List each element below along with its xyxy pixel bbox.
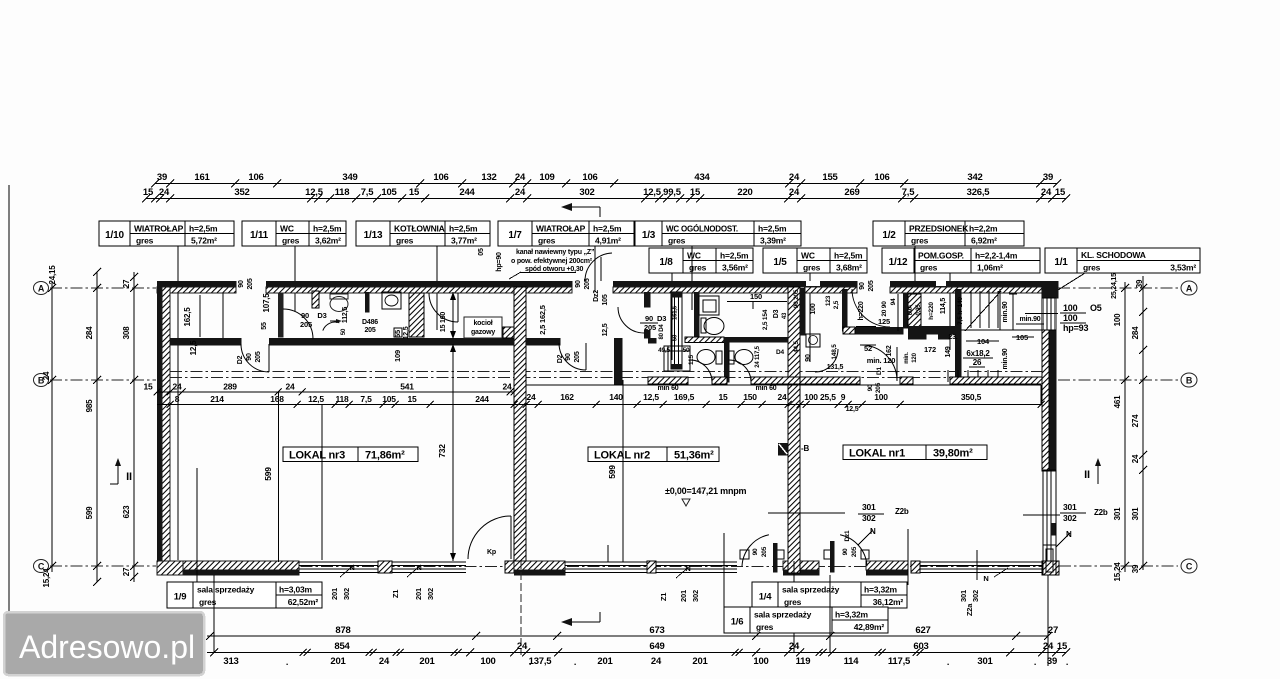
svg-text:Dz2: Dz2 (593, 290, 600, 302)
svg-text:49,5: 49,5 (658, 347, 670, 354)
svg-text:352: 352 (234, 187, 249, 198)
svg-text:24: 24 (526, 392, 536, 402)
svg-text:3,53m²: 3,53m² (1170, 263, 1196, 273)
svg-text:100: 100 (874, 392, 888, 402)
svg-text:1/9: 1/9 (174, 592, 187, 603)
svg-text:±0,00=147,21 mnpm: ±0,00=147,21 mnpm (665, 486, 747, 496)
svg-text:150: 150 (743, 392, 757, 402)
svg-text:148,5: 148,5 (831, 344, 838, 360)
svg-text:308: 308 (122, 326, 131, 339)
svg-text:WIATROŁAP: WIATROŁAP (536, 224, 586, 234)
svg-text:201: 201 (414, 588, 423, 600)
svg-text:26: 26 (973, 358, 982, 367)
svg-text:.: . (529, 657, 531, 667)
svg-text:min 60: min 60 (658, 385, 679, 392)
svg-text:h=2,5m: h=2,5m (834, 251, 863, 261)
svg-text:301: 301 (1131, 507, 1140, 520)
svg-text:269: 269 (844, 187, 859, 198)
svg-text:201: 201 (330, 656, 346, 667)
svg-text:15,24: 15,24 (42, 568, 51, 588)
svg-text:201: 201 (419, 656, 435, 667)
svg-text:137,5: 137,5 (529, 656, 553, 667)
svg-text:90: 90 (645, 314, 653, 323)
svg-text:541: 541 (400, 382, 414, 392)
svg-text:12,5: 12,5 (643, 392, 659, 402)
svg-text:24: 24 (517, 641, 528, 652)
svg-text:140: 140 (609, 392, 623, 402)
svg-text:100: 100 (753, 656, 768, 667)
svg-text:39: 39 (1043, 172, 1053, 183)
svg-text:15: 15 (1055, 187, 1066, 198)
svg-text:3,62m²: 3,62m² (315, 236, 341, 246)
svg-text:12,5: 12,5 (305, 187, 324, 198)
svg-text:12,5: 12,5 (846, 406, 859, 413)
svg-text:161,5: 161,5 (673, 305, 679, 320)
svg-text:132: 132 (481, 172, 496, 183)
svg-text:4,91m²: 4,91m² (595, 236, 621, 246)
svg-text:h=2,5m: h=2,5m (313, 224, 342, 234)
svg-text:90: 90 (301, 311, 309, 320)
svg-text:KL. SCHODOWA: KL. SCHODOWA (1081, 250, 1146, 260)
svg-text:90 205: 90 205 (793, 289, 800, 308)
svg-text:h=220: h=220 (928, 302, 935, 320)
svg-text:205: 205 (644, 323, 656, 332)
svg-text:301: 301 (977, 656, 993, 667)
svg-text:12,5: 12,5 (403, 326, 410, 339)
svg-text:3,68m²: 3,68m² (836, 263, 862, 273)
svg-text:WC OGÓLNODOST.: WC OGÓLNODOST. (666, 225, 738, 234)
svg-text:205: 205 (851, 546, 858, 557)
svg-text:min.90: min.90 (1002, 348, 1009, 369)
svg-text:205: 205 (868, 280, 875, 291)
svg-text:12,5: 12,5 (308, 394, 324, 404)
svg-text:106: 106 (248, 172, 263, 183)
svg-text:172: 172 (924, 345, 936, 354)
svg-text:168: 168 (270, 394, 284, 404)
svg-text:350,5: 350,5 (961, 392, 982, 402)
svg-text:90: 90 (565, 353, 572, 361)
svg-text:342: 342 (967, 172, 982, 183)
svg-text:gres: gres (1083, 263, 1101, 273)
svg-text:43: 43 (782, 312, 788, 319)
svg-text:1/2: 1/2 (882, 230, 896, 241)
svg-text:h=2,5m: h=2,5m (189, 224, 218, 234)
svg-text:289: 289 (223, 382, 237, 392)
svg-text:162,5: 162,5 (183, 307, 192, 327)
svg-text:55: 55 (261, 322, 268, 330)
svg-text:100: 100 (1063, 313, 1078, 323)
svg-text:313: 313 (223, 656, 238, 667)
svg-text:1/11: 1/11 (250, 230, 269, 241)
svg-text:205: 205 (247, 278, 254, 289)
svg-text:854: 854 (334, 641, 350, 652)
svg-text:114: 114 (844, 656, 860, 667)
svg-text:D3: D3 (773, 309, 780, 318)
svg-text:LOKAL nr1: LOKAL nr1 (849, 448, 905, 460)
svg-text:N: N (870, 527, 876, 536)
svg-text:220: 220 (737, 187, 752, 198)
svg-text:90: 90 (238, 280, 245, 288)
svg-text:109: 109 (393, 350, 402, 362)
svg-text:h=2,2-1,4m: h=2,2-1,4m (975, 251, 1018, 261)
svg-text:162: 162 (560, 392, 574, 402)
svg-text:gres: gres (538, 236, 556, 246)
svg-text:205: 205 (574, 351, 581, 362)
svg-text:1/5: 1/5 (773, 257, 787, 268)
svg-text:106: 106 (582, 172, 597, 183)
svg-text:100: 100 (1063, 303, 1078, 313)
svg-text:B: B (1186, 376, 1193, 386)
svg-text:2,5: 2,5 (833, 300, 840, 309)
svg-text:1/1: 1/1 (1054, 257, 1068, 268)
svg-text:302: 302 (862, 513, 876, 523)
svg-text:O5: O5 (1090, 303, 1102, 313)
svg-text:302: 302 (691, 590, 700, 602)
svg-text:kanał nawiewny typu „Z”: kanał nawiewny typu „Z” (516, 249, 594, 256)
svg-text:C: C (1186, 562, 1193, 572)
svg-text:205: 205 (300, 320, 312, 329)
svg-text:123: 123 (825, 295, 832, 306)
svg-text:gres: gres (803, 263, 821, 273)
svg-text:39: 39 (157, 172, 167, 183)
svg-text:244: 244 (459, 187, 475, 198)
svg-text:302: 302 (971, 590, 980, 602)
svg-text:100: 100 (810, 303, 817, 314)
svg-text:A: A (1186, 284, 1193, 294)
svg-text:627: 627 (915, 625, 930, 636)
svg-text:1/7: 1/7 (508, 230, 522, 241)
svg-text:24: 24 (789, 641, 800, 652)
svg-text:599: 599 (607, 465, 617, 479)
svg-text:205: 205 (364, 327, 375, 334)
svg-text:24: 24 (515, 172, 526, 183)
svg-text:Dz1: Dz1 (844, 530, 851, 542)
svg-text:39: 39 (1131, 564, 1140, 573)
svg-text:WC: WC (687, 251, 701, 261)
svg-text:D4: D4 (776, 349, 784, 356)
svg-text:24: 24 (651, 656, 662, 667)
svg-text:gres: gres (911, 236, 929, 246)
svg-text:D486: D486 (362, 319, 378, 326)
svg-text:24: 24 (1131, 454, 1140, 463)
svg-text:9: 9 (841, 392, 846, 402)
svg-text:599: 599 (263, 467, 273, 481)
svg-text:12,5: 12,5 (189, 340, 198, 356)
svg-text:62,52m²: 62,52m² (288, 597, 319, 607)
svg-text:Z1: Z1 (659, 593, 668, 601)
svg-text:LOKAL nr2: LOKAL nr2 (594, 450, 650, 462)
svg-text:sala sprzedaży: sala sprzedaży (782, 585, 840, 595)
svg-text:94: 94 (890, 298, 897, 305)
svg-text:1/12: 1/12 (889, 257, 908, 268)
svg-text:24: 24 (172, 382, 182, 392)
svg-text:min 60: min 60 (756, 385, 777, 392)
svg-text:7,5 h=140: 7,5 h=140 (957, 297, 964, 325)
svg-text:105: 105 (1016, 333, 1028, 342)
svg-text:N: N (416, 563, 421, 572)
svg-text:24: 24 (502, 382, 512, 392)
svg-text:112,5: 112,5 (342, 307, 349, 323)
svg-text:1/6: 1/6 (731, 617, 744, 628)
svg-text:162: 162 (886, 345, 893, 356)
svg-text:24 117,5: 24 117,5 (755, 345, 761, 367)
svg-text:1/10: 1/10 (105, 230, 124, 241)
svg-text:gres: gres (668, 236, 686, 246)
svg-text:104: 104 (977, 337, 990, 346)
svg-text:D1: D1 (876, 366, 883, 374)
svg-text:1/8: 1/8 (659, 257, 673, 268)
svg-text:205: 205 (761, 546, 768, 557)
svg-text:WC: WC (801, 251, 815, 261)
svg-text:II: II (126, 471, 132, 483)
svg-text:201: 201 (330, 588, 339, 600)
svg-text:09A: 09A (908, 304, 914, 315)
svg-text:673: 673 (649, 625, 664, 636)
svg-text:461: 461 (1113, 395, 1122, 408)
svg-text:27: 27 (1048, 625, 1058, 636)
svg-text:LOKAL nr3: LOKAL nr3 (289, 450, 345, 462)
svg-text:302: 302 (342, 588, 351, 600)
svg-text:8: 8 (175, 394, 180, 404)
svg-text:7,5: 7,5 (360, 394, 372, 404)
svg-text:WC: WC (280, 224, 294, 234)
svg-text:326,5: 326,5 (967, 187, 991, 198)
svg-text:50: 50 (673, 334, 679, 341)
svg-text:15 160: 15 160 (440, 312, 447, 333)
svg-text:gres: gres (396, 236, 414, 246)
svg-text:h=3,03m: h=3,03m (279, 585, 312, 595)
svg-text:gres: gres (282, 236, 300, 246)
svg-text:D3: D3 (317, 311, 326, 320)
svg-text:Adresowo.pl: Adresowo.pl (19, 629, 195, 665)
svg-text:302: 302 (1063, 513, 1077, 523)
svg-text:201: 201 (597, 656, 613, 667)
svg-text:min.90: min.90 (1002, 301, 1009, 322)
svg-text:7,5: 7,5 (902, 187, 916, 198)
svg-text:1/3: 1/3 (642, 230, 656, 241)
svg-text:1,06m²: 1,06m² (977, 263, 1003, 273)
svg-text:90: 90 (575, 280, 582, 288)
svg-text:284: 284 (85, 326, 94, 339)
svg-text:gres: gres (920, 263, 938, 273)
svg-text:24: 24 (42, 371, 51, 380)
svg-text:3,77m²: 3,77m² (451, 236, 477, 246)
svg-text:15: 15 (143, 187, 154, 198)
svg-text:o pow. efektywnej 200cm²: o pow. efektywnej 200cm² (511, 258, 593, 265)
svg-text:5,72m²: 5,72m² (191, 236, 217, 246)
svg-text:90: 90 (805, 354, 812, 362)
svg-text:II: II (1084, 469, 1090, 481)
svg-text:15: 15 (718, 392, 728, 402)
svg-text:349: 349 (342, 172, 357, 183)
svg-text:24: 24 (379, 656, 390, 667)
svg-text:244: 244 (475, 394, 489, 404)
svg-text:2,5 154: 2,5 154 (762, 309, 769, 330)
svg-text:24: 24 (777, 392, 787, 402)
svg-text:99,5: 99,5 (663, 187, 682, 198)
svg-text:42,89m²: 42,89m² (854, 622, 885, 632)
svg-text:POM.GOSP.: POM.GOSP. (918, 251, 964, 261)
svg-text:24: 24 (1041, 187, 1052, 198)
svg-text:109: 109 (539, 172, 554, 183)
svg-text:15: 15 (407, 394, 417, 404)
svg-text:24: 24 (515, 187, 526, 198)
svg-text:gres: gres (756, 622, 774, 632)
svg-text:1/4: 1/4 (759, 592, 773, 603)
svg-text:15: 15 (409, 187, 420, 198)
svg-text:hp=93: hp=93 (1063, 323, 1088, 333)
svg-text:h=2,2m: h=2,2m (969, 224, 998, 234)
svg-text:117,5: 117,5 (888, 656, 911, 667)
svg-text:24: 24 (1043, 641, 1054, 652)
svg-text:.: . (574, 657, 576, 667)
svg-text:15: 15 (1057, 641, 1068, 652)
svg-text:44,5: 44,5 (793, 340, 800, 352)
svg-text:h=2,5m: h=2,5m (593, 224, 622, 234)
svg-text:985: 985 (85, 399, 94, 412)
svg-text:155: 155 (822, 172, 838, 183)
svg-text:12,5: 12,5 (643, 187, 662, 198)
svg-text:h=220: h=220 (858, 301, 865, 320)
svg-text:649: 649 (649, 641, 664, 652)
svg-text:878: 878 (335, 625, 350, 636)
svg-text:kocioł: kocioł (473, 320, 492, 327)
svg-text:24: 24 (789, 187, 800, 198)
svg-text:119: 119 (796, 656, 811, 667)
svg-text:24,15: 24,15 (48, 265, 57, 285)
svg-text:100: 100 (480, 656, 495, 667)
svg-text:15: 15 (143, 382, 153, 392)
svg-text:05: 05 (478, 248, 485, 256)
svg-text:N: N (983, 574, 988, 583)
svg-text:-B: -B (801, 444, 809, 453)
svg-text:15: 15 (690, 187, 701, 198)
svg-text:12,5: 12,5 (602, 323, 609, 336)
svg-text:gazowy: gazowy (471, 329, 495, 336)
svg-text:Z2b: Z2b (895, 507, 909, 516)
svg-text:106: 106 (433, 172, 448, 183)
svg-text:27: 27 (122, 567, 131, 576)
svg-text:201: 201 (692, 656, 708, 667)
svg-text:min.: min. (904, 352, 910, 364)
svg-text:50: 50 (683, 347, 690, 354)
svg-text:169,5: 169,5 (674, 392, 695, 402)
svg-text:.: . (286, 657, 288, 667)
svg-text:D3: D3 (657, 314, 666, 323)
svg-text:623: 623 (122, 505, 131, 518)
svg-text:301: 301 (862, 502, 876, 512)
svg-text:100: 100 (1113, 313, 1122, 326)
svg-text:27: 27 (122, 279, 131, 288)
svg-text:24: 24 (159, 187, 170, 198)
svg-text:20 90: 20 90 (881, 301, 888, 317)
svg-text:150: 150 (750, 292, 762, 301)
svg-text:Z2b: Z2b (1094, 508, 1108, 517)
svg-text:301: 301 (959, 590, 968, 602)
svg-text:80 D4: 80 D4 (659, 324, 665, 340)
svg-text:732: 732 (437, 444, 447, 458)
svg-text:.: . (1066, 657, 1068, 667)
svg-text:Z1: Z1 (391, 590, 400, 598)
svg-text:301: 301 (1063, 502, 1077, 512)
svg-text:15,24: 15,24 (1113, 562, 1122, 582)
svg-text:KOTŁOWNIA: KOTŁOWNIA (394, 224, 445, 234)
svg-text:gres: gres (784, 597, 802, 607)
svg-text:2,5 162,5: 2,5 162,5 (538, 305, 547, 335)
svg-text:D2: D2 (237, 355, 244, 364)
svg-text:N: N (685, 564, 690, 573)
svg-text:118: 118 (335, 187, 350, 198)
svg-text:0,95: 0,95 (916, 304, 922, 316)
svg-text:gres: gres (136, 236, 154, 246)
svg-text:114,5: 114,5 (940, 298, 947, 314)
svg-text:302: 302 (426, 588, 435, 600)
svg-text:201: 201 (679, 590, 688, 602)
svg-text:h=3,32m: h=3,32m (835, 610, 868, 620)
svg-text:.: . (1034, 657, 1036, 667)
svg-text:90: 90 (842, 548, 849, 555)
svg-text:105: 105 (602, 294, 609, 305)
svg-text:39,80m²: 39,80m² (933, 448, 973, 460)
svg-text:51,36m²: 51,36m² (674, 450, 714, 462)
svg-text:A: A (38, 284, 45, 294)
svg-text:90: 90 (859, 282, 866, 290)
svg-text:36,12m²: 36,12m² (873, 597, 904, 607)
svg-text:h=2,5m: h=2,5m (449, 224, 478, 234)
svg-text:h=2,5m: h=2,5m (758, 224, 787, 234)
svg-text:131,5: 131,5 (827, 364, 844, 371)
svg-text:55: 55 (393, 330, 402, 338)
svg-text:39: 39 (1135, 279, 1144, 288)
svg-text:205: 205 (255, 351, 262, 362)
svg-text:sala sprzedaży: sala sprzedaży (197, 585, 255, 595)
svg-text:h=2,5m: h=2,5m (720, 251, 749, 261)
svg-text:71,86m²: 71,86m² (365, 450, 405, 462)
svg-text:90: 90 (246, 353, 253, 361)
svg-text:WIATROŁAP: WIATROŁAP (134, 224, 184, 234)
svg-text:Z2a: Z2a (965, 603, 974, 616)
svg-text:3,39m²: 3,39m² (760, 236, 786, 246)
svg-text:6x18,2: 6x18,2 (966, 349, 990, 358)
svg-text:106: 106 (874, 172, 889, 183)
svg-text:h=3,32m: h=3,32m (864, 585, 897, 595)
svg-text:100 25,5: 100 25,5 (804, 392, 836, 402)
svg-text:min.90: min.90 (1020, 316, 1041, 323)
svg-text:599: 599 (85, 506, 94, 519)
svg-text:23.: 23. (948, 334, 957, 341)
svg-text:302: 302 (579, 187, 594, 198)
svg-text:284: 284 (1131, 326, 1140, 339)
svg-text:161: 161 (194, 172, 210, 183)
svg-text:6,92m²: 6,92m² (971, 236, 997, 246)
svg-text:603: 603 (913, 641, 928, 652)
svg-text:sala sprzedaży: sala sprzedaży (754, 610, 812, 620)
svg-text:7,5: 7,5 (361, 187, 375, 198)
svg-text:24: 24 (285, 382, 295, 392)
svg-text:1/13: 1/13 (364, 230, 383, 241)
svg-text:105: 105 (381, 187, 397, 198)
svg-text:50: 50 (341, 328, 347, 335)
svg-text:120: 120 (912, 352, 918, 362)
svg-text:107,5: 107,5 (262, 293, 271, 313)
svg-text:PRZEDSIONEK: PRZEDSIONEK (909, 224, 969, 234)
svg-text:N: N (349, 563, 354, 572)
svg-text:125: 125 (878, 317, 890, 326)
svg-text:301: 301 (1113, 507, 1122, 520)
svg-text:434: 434 (694, 172, 710, 183)
svg-text:274: 274 (1131, 414, 1140, 427)
svg-text:.: . (947, 657, 949, 667)
